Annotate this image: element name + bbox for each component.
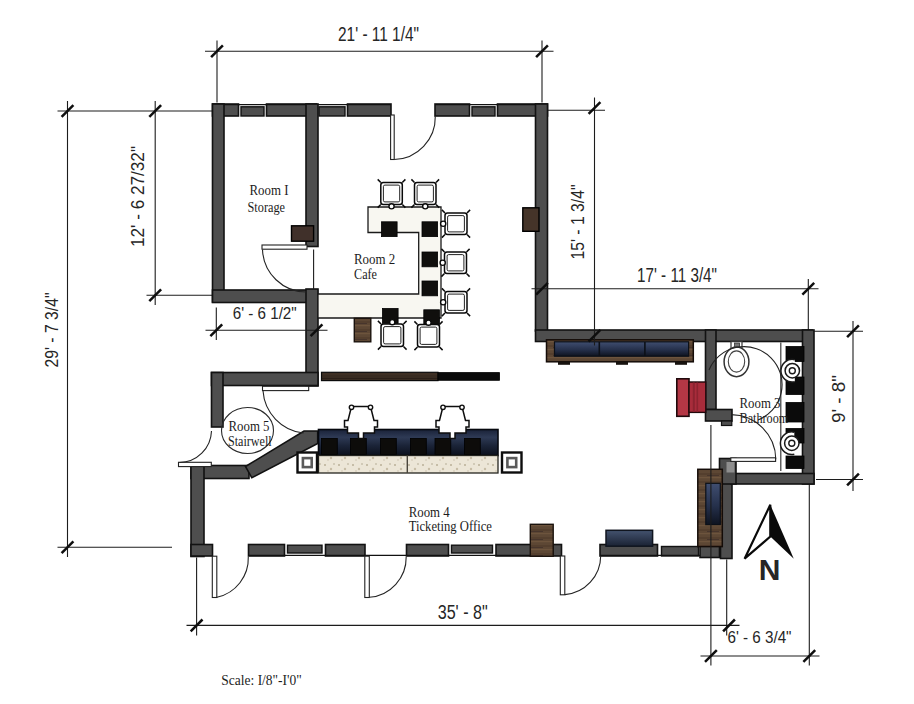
- svg-text:35' - 8": 35' - 8": [438, 601, 488, 623]
- svg-text:Bathroom: Bathroom: [740, 410, 789, 426]
- svg-text:Room 2: Room 2: [354, 251, 395, 267]
- svg-text:Room 3: Room 3: [740, 395, 781, 411]
- svg-text:Ticketing Office: Ticketing Office: [409, 518, 493, 534]
- svg-text:6' - 6 3/4": 6' - 6 3/4": [728, 629, 792, 646]
- svg-text:Room 5: Room 5: [229, 418, 270, 434]
- svg-text:Scale: I/8"-I'0": Scale: I/8"-I'0": [221, 671, 301, 688]
- svg-text:12' - 6 27/32": 12' - 6 27/32": [127, 146, 148, 247]
- svg-text:N: N: [759, 553, 781, 586]
- svg-text:Stairwell: Stairwell: [228, 433, 272, 449]
- svg-text:Cafe: Cafe: [354, 266, 377, 282]
- svg-text:17' - 11 3/4": 17' - 11 3/4": [637, 264, 717, 286]
- svg-text:9' - 8": 9' - 8": [829, 375, 849, 423]
- svg-text:Storage: Storage: [248, 199, 286, 215]
- svg-text:15' - 1 3/4": 15' - 1 3/4": [567, 185, 588, 260]
- svg-text:29' - 7 3/4": 29' - 7 3/4": [41, 293, 62, 368]
- svg-text:6' - 6 1/2": 6' - 6 1/2": [233, 304, 297, 322]
- svg-text:Room I: Room I: [250, 182, 289, 198]
- svg-text:21' - 11 1/4": 21' - 11 1/4": [338, 23, 419, 45]
